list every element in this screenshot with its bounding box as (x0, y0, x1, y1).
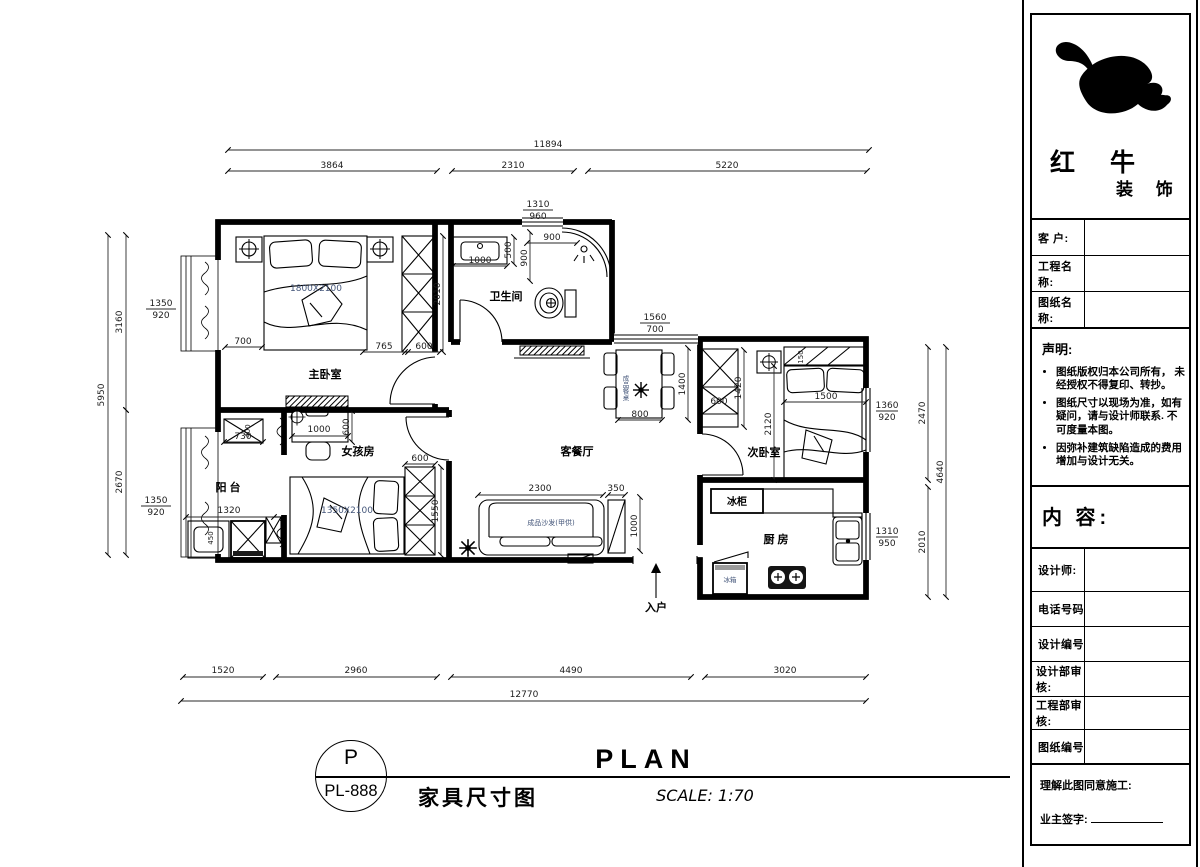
content-section: 内 容: (1032, 487, 1189, 549)
field-drawing-name: 图纸名称: (1032, 292, 1189, 329)
svg-text:1000: 1000 (308, 425, 331, 435)
svg-text:950: 950 (878, 539, 895, 549)
svg-text:700: 700 (646, 325, 663, 335)
field-design-number: 设计编号 (1032, 627, 1189, 662)
svg-text:2120: 2120 (764, 412, 774, 435)
svg-text:1520: 1520 (212, 666, 235, 676)
svg-text:765: 765 (375, 342, 392, 352)
svg-text:920: 920 (152, 311, 169, 321)
svg-text:600: 600 (710, 397, 727, 407)
master-bedroom-furniture (236, 236, 435, 416)
room-label-second-bedroom: 次卧室 (748, 445, 781, 459)
svg-text:500: 500 (504, 241, 514, 258)
agreement-text: 理解此图同意施工: (1040, 777, 1189, 793)
sheet-right-border (1196, 0, 1198, 867)
svg-text:900: 900 (520, 249, 530, 266)
label-entrance: 入户 (645, 600, 667, 614)
svg-text:1360: 1360 (876, 401, 899, 411)
statement-section: 声明: 图纸版权归本公司所有， 未经授权不得复印、转抄。 图纸尺寸以现场为准，如… (1032, 329, 1189, 487)
field-phone-value (1085, 592, 1189, 626)
drawing-title: 家具尺寸图 (408, 782, 548, 812)
drawing-sheet: 11894 3864 2310 5220 1520 2960 4490 3020… (0, 0, 1200, 867)
signature-section: 理解此图同意施工: 业主签字: (1032, 765, 1189, 844)
field-client: 客 户: (1032, 220, 1189, 256)
statement-heading: 声明: (1042, 339, 1185, 358)
plan-word: PLAN (566, 744, 726, 775)
drawing-tag-letter: P (323, 746, 379, 770)
field-design-review-value (1085, 662, 1189, 696)
svg-text:1550: 1550 (431, 499, 441, 522)
svg-text:3020: 3020 (774, 666, 797, 676)
room-label-bathroom: 卫生间 (490, 289, 523, 303)
svg-text:700: 700 (234, 337, 251, 347)
second-bed (784, 366, 866, 478)
svg-text:2010: 2010 (918, 530, 928, 553)
svg-text:1560: 1560 (644, 313, 667, 323)
room-label-balcony: 阳 台 (215, 480, 240, 494)
signature-line (1091, 812, 1163, 823)
svg-text:450: 450 (207, 531, 215, 544)
bathroom-fixtures (453, 228, 611, 318)
svg-text:2300: 2300 (529, 484, 552, 494)
curtain-icon (202, 262, 209, 339)
svg-text:150: 150 (797, 350, 805, 363)
svg-text:920: 920 (878, 413, 895, 423)
field-project-name: 工程名称: (1032, 256, 1189, 292)
svg-text:1400: 1400 (678, 372, 688, 395)
label-sofa: 成品沙发(甲供) (527, 518, 575, 527)
svg-text:920: 920 (147, 508, 164, 518)
field-engineering-review: 工程部审核: (1032, 697, 1189, 730)
title-rule-line (316, 776, 1010, 778)
field-client-value (1085, 220, 1189, 255)
svg-text:4640: 4640 (936, 460, 946, 483)
label-fridge: 冰箱 (724, 575, 738, 584)
field-designer-value (1085, 549, 1189, 591)
svg-text:2310: 2310 (502, 161, 525, 171)
svg-text:1000: 1000 (469, 256, 492, 266)
label-girl-bed-size: 1350X2100 (321, 506, 373, 516)
shower (562, 228, 611, 277)
door-bathroom (460, 300, 502, 342)
svg-text:3160: 3160 (115, 310, 125, 333)
field-designer: 设计师: (1032, 549, 1189, 592)
logo-text-1: 红 牛 (1050, 143, 1149, 179)
room-label-girls-room: 女孩房 (342, 444, 375, 458)
owner-signature-label: 业主签字: (1040, 814, 1088, 826)
label-dining-table: 成品餐桌 (621, 374, 629, 403)
svg-text:5950: 5950 (97, 383, 107, 406)
label-master-bed-size: 1800X2100 (290, 284, 342, 294)
svg-text:5220: 5220 (716, 161, 739, 171)
label-freezer: 冰柜 (727, 495, 747, 508)
field-drawing-number: 图纸编号 (1032, 730, 1189, 765)
logo-text-2: 装 饰 (1116, 175, 1182, 200)
svg-text:3864: 3864 (321, 161, 344, 171)
svg-text:1310: 1310 (527, 200, 550, 210)
svg-text:1420: 1420 (734, 376, 744, 399)
statement-item: 因弥补建筑缺陷造成的费用 增加与设计无关。 (1056, 442, 1185, 468)
field-phone: 电话号码 (1032, 592, 1189, 627)
svg-text:1000: 1000 (630, 514, 640, 537)
scale-label: SCALE: 1:70 (630, 786, 780, 805)
svg-text:1310: 1310 (876, 527, 899, 537)
second-wardrobe (702, 349, 738, 427)
svg-text:12770: 12770 (510, 690, 539, 700)
second-bedroom-furniture (702, 347, 866, 478)
field-design-review: 设计部审核: (1032, 662, 1189, 697)
entrance-arrow-icon (651, 563, 661, 573)
window-living-top (614, 334, 698, 345)
tv-cabinet (520, 346, 584, 355)
field-drawing-number-value (1085, 730, 1189, 763)
title-block: 红 牛 装 饰 客 户: 工程名称: 图纸名称: 声明: 图纸版权归本公司所有，… (1030, 13, 1191, 846)
svg-text:600: 600 (342, 418, 352, 435)
statement-item: 图纸尺寸以现场为准，如有 疑问，请与设计师联系. 不可度量本图。 (1056, 397, 1185, 436)
svg-text:350: 350 (607, 484, 624, 494)
svg-text:1350: 1350 (150, 299, 173, 309)
curtain-icon (202, 436, 209, 535)
svg-text:2960: 2960 (345, 666, 368, 676)
door-second-bedroom (702, 434, 743, 475)
sheet-divider-line (1022, 0, 1024, 867)
dim-top-total: 11894 (534, 140, 563, 150)
desk-chair (306, 442, 330, 460)
floor-plan: 11894 3864 2310 5220 1520 2960 4490 3020… (0, 0, 1023, 867)
svg-text:400: 400 (244, 424, 252, 437)
svg-text:1350: 1350 (145, 496, 168, 506)
master-wardrobe (402, 236, 435, 352)
room-label-kitchen: 厨 房 (763, 532, 788, 546)
sofa (479, 500, 604, 555)
field-engineering-review-value (1085, 697, 1189, 729)
svg-text:2010: 2010 (433, 282, 443, 305)
svg-text:900: 900 (543, 233, 560, 243)
svg-text:2470: 2470 (918, 401, 928, 424)
svg-text:1500: 1500 (815, 392, 838, 402)
toilet (565, 290, 576, 317)
room-label-master-bedroom: 主卧室 (309, 367, 342, 381)
bull-logo-icon (1050, 33, 1175, 128)
svg-text:960: 960 (529, 212, 546, 222)
room-label-living-dining: 客餐厅 (560, 444, 594, 458)
drawing-tag-number: PL-888 (319, 782, 383, 801)
svg-text:4490: 4490 (560, 666, 583, 676)
door-master-bedroom (390, 357, 435, 404)
field-project-name-value (1085, 256, 1189, 291)
entrance-opening (633, 556, 697, 598)
svg-text:800: 800 (631, 410, 648, 420)
company-logo: 红 牛 装 饰 (1032, 15, 1189, 220)
statement-item: 图纸版权归本公司所有， 未经授权不得复印、转抄。 (1056, 366, 1185, 392)
dresser (286, 396, 348, 407)
field-drawing-name-value (1085, 292, 1189, 327)
field-design-number-value (1085, 627, 1189, 661)
interior-walls (218, 222, 866, 560)
bay-window-master (181, 256, 222, 351)
svg-text:600: 600 (411, 454, 428, 464)
svg-text:1320: 1320 (218, 506, 241, 516)
svg-text:600: 600 (415, 342, 432, 352)
svg-text:2670: 2670 (115, 470, 125, 493)
